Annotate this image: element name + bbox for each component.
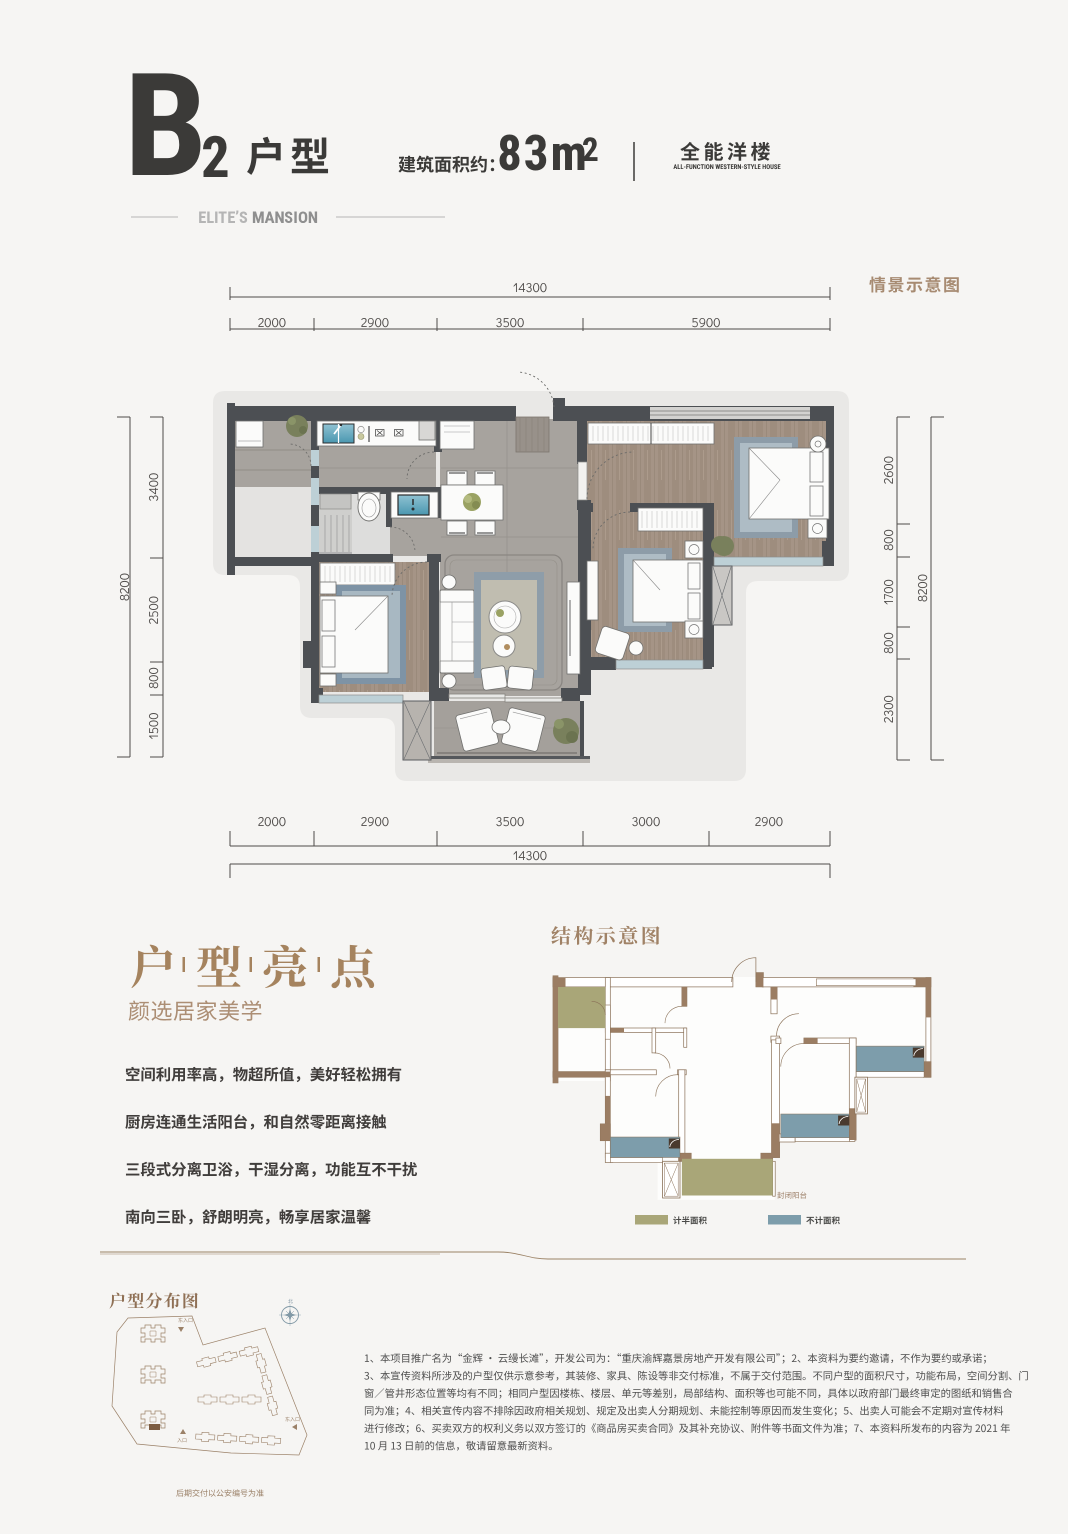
svg-text:全能洋楼: 全能洋楼	[680, 136, 774, 165]
svg-text:结构示意图: 结构示意图	[551, 920, 663, 949]
svg-text:14300: 14300	[513, 847, 547, 864]
svg-text:后期交付以公安编号为准: 后期交付以公安编号为准	[176, 1488, 264, 1499]
svg-text:计半面积: 计半面积	[673, 1215, 708, 1227]
svg-text:2900: 2900	[361, 813, 389, 830]
svg-text:8200: 8200	[116, 573, 133, 601]
svg-text:同为准；4、相关宣传内容不排除因政府相关规划、规定及出卖人分: 同为准；4、相关宣传内容不排除因政府相关规划、规定及出卖人分期规划、未能控制等原…	[364, 1403, 1004, 1418]
svg-text:B: B	[124, 43, 207, 211]
svg-text:三段式分离卫浴，干湿分离，功能互不干扰: 三段式分离卫浴，干湿分离，功能互不干扰	[125, 1158, 418, 1180]
svg-text:3、本宣传资料所涉及的户型仅供示意参考，其装修、家具、陈设等: 3、本宣传资料所涉及的户型仅供示意参考，其装修、家具、陈设等非交付标准，不属于交…	[364, 1368, 1029, 1383]
svg-text:东入口: 东入口	[178, 1317, 193, 1324]
svg-text:1500: 1500	[145, 712, 162, 739]
svg-text:800: 800	[880, 529, 897, 551]
svg-text:2900: 2900	[361, 314, 389, 331]
svg-text:封闭阳台: 封闭阳台	[777, 1190, 807, 1201]
svg-text:2000: 2000	[258, 813, 286, 830]
svg-text:800: 800	[145, 667, 162, 689]
svg-text:入口: 入口	[177, 1437, 187, 1444]
svg-text:进行修改；6、买卖双方的权利义务以双方签订的《商品房买卖合同: 进行修改；6、买卖双方的权利义务以双方签订的《商品房买卖合同》及其补充协议、附件…	[364, 1420, 1010, 1435]
svg-text:户型: 户型	[246, 125, 334, 183]
svg-text:3500: 3500	[496, 813, 525, 830]
svg-text:10 月 13 日前的信息，敬请留意最新资料。: 10 月 13 日前的信息，敬请留意最新资料。	[364, 1438, 559, 1453]
svg-text:2000: 2000	[258, 314, 286, 331]
svg-text:点: 点	[330, 932, 379, 998]
svg-text:情景示意图: 情景示意图	[869, 271, 962, 296]
svg-text:2: 2	[201, 124, 230, 191]
svg-text:东入口: 东入口	[285, 1416, 300, 1423]
svg-text:1700: 1700	[880, 579, 897, 605]
svg-text:14300: 14300	[513, 279, 547, 296]
svg-text:颜选居家美学: 颜选居家美学	[128, 994, 263, 1026]
svg-text:不计面积: 不计面积	[806, 1215, 841, 1227]
svg-text:空间利用率高，物超所值，美好轻松拥有: 空间利用率高，物超所值，美好轻松拥有	[125, 1063, 402, 1085]
svg-text:3400: 3400	[145, 473, 162, 502]
svg-text:2300: 2300	[880, 695, 897, 723]
svg-text:2600: 2600	[880, 456, 897, 484]
svg-text:户: 户	[130, 932, 176, 998]
svg-text:亮: 亮	[262, 932, 308, 998]
svg-text:户型分布图: 户型分布图	[109, 1287, 200, 1312]
svg-text:2900: 2900	[755, 813, 783, 830]
svg-text:3000: 3000	[632, 813, 661, 830]
svg-text:83m: 83m	[497, 125, 589, 182]
svg-text:ELITE’S MANSION: ELITE’S MANSION	[198, 209, 318, 228]
svg-text:3500: 3500	[496, 314, 525, 331]
svg-text:5900: 5900	[691, 314, 720, 331]
svg-text:1、本项目推广名为“金辉 · 云缦长滩”，开发公司为：“重庆: 1、本项目推广名为“金辉 · 云缦长滩”，开发公司为：“重庆渝辉嘉景房地产开发有…	[364, 1350, 993, 1365]
svg-text:8200: 8200	[914, 574, 931, 602]
svg-text:窗／管井形态位置等均有不同；相同户型因楼栋、楼层、单元等差别: 窗／管井形态位置等均有不同；相同户型因楼栋、楼层、单元等差别，局部结构、面积等也…	[364, 1385, 1013, 1400]
svg-text:南向三卧，舒朗明亮，畅享居家温馨: 南向三卧，舒朗明亮，畅享居家温馨	[125, 1206, 371, 1228]
svg-text:北: 北	[288, 1298, 293, 1305]
svg-text:建筑面积约：: 建筑面积约：	[398, 151, 506, 177]
svg-text:2500: 2500	[145, 596, 162, 624]
svg-text:型: 型	[196, 932, 242, 998]
svg-text:800: 800	[880, 632, 897, 654]
svg-text:厨房连通生活阳台，和自然零距离接触: 厨房连通生活阳台，和自然零距离接触	[125, 1111, 387, 1133]
svg-text:2: 2	[582, 131, 599, 170]
